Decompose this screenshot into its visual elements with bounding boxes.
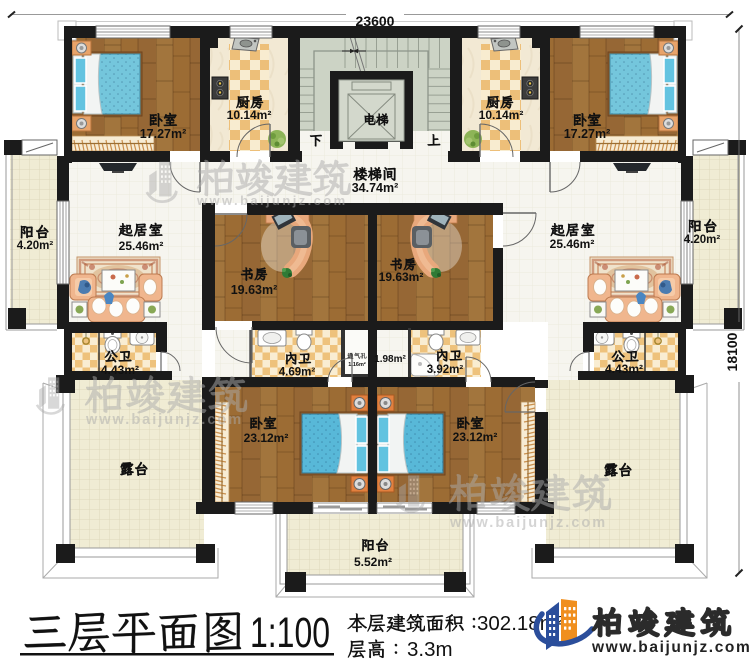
svg-text:19.63m²: 19.63m² <box>379 270 424 284</box>
svg-text:1.16m²: 1.16m² <box>348 361 366 368</box>
svg-text:4.43m²: 4.43m² <box>605 362 643 376</box>
svg-text:17.27m²: 17.27m² <box>140 127 187 141</box>
svg-text:5.52m²: 5.52m² <box>354 555 392 569</box>
svg-text:3.3m: 3.3m <box>407 638 453 661</box>
svg-text:23.12m²: 23.12m² <box>453 430 498 444</box>
svg-text:23600: 23600 <box>356 13 395 29</box>
svg-text:17.27m²: 17.27m² <box>564 127 611 141</box>
svg-text:19.63m²: 19.63m² <box>231 283 278 297</box>
svg-text:4.20m²: 4.20m² <box>17 240 54 252</box>
svg-text:25.46m²: 25.46m² <box>550 237 595 251</box>
svg-text:10.14m²: 10.14m² <box>479 108 524 122</box>
svg-text:18100: 18100 <box>724 332 740 371</box>
svg-text:10.14m²: 10.14m² <box>227 108 272 122</box>
svg-text:1.98m²: 1.98m² <box>374 354 406 365</box>
svg-text:34.74m²: 34.74m² <box>352 181 399 195</box>
svg-text:23.12m²: 23.12m² <box>244 431 289 445</box>
svg-text:www.baijunjz.com: www.baijunjz.com <box>196 193 348 208</box>
svg-text:1:100: 1:100 <box>250 609 330 657</box>
svg-text:www.baijunjz.com: www.baijunjz.com <box>85 412 243 428</box>
svg-text:www.baijunjz.com: www.baijunjz.com <box>591 639 750 656</box>
svg-text:25.46m²: 25.46m² <box>119 239 164 253</box>
svg-text:3.92m²: 3.92m² <box>427 364 464 376</box>
svg-text:4.69m²: 4.69m² <box>279 367 316 379</box>
svg-text:4.20m²: 4.20m² <box>684 234 721 246</box>
svg-text:4.43m²: 4.43m² <box>101 363 139 377</box>
svg-text:www.baijunjz.com: www.baijunjz.com <box>449 515 607 531</box>
